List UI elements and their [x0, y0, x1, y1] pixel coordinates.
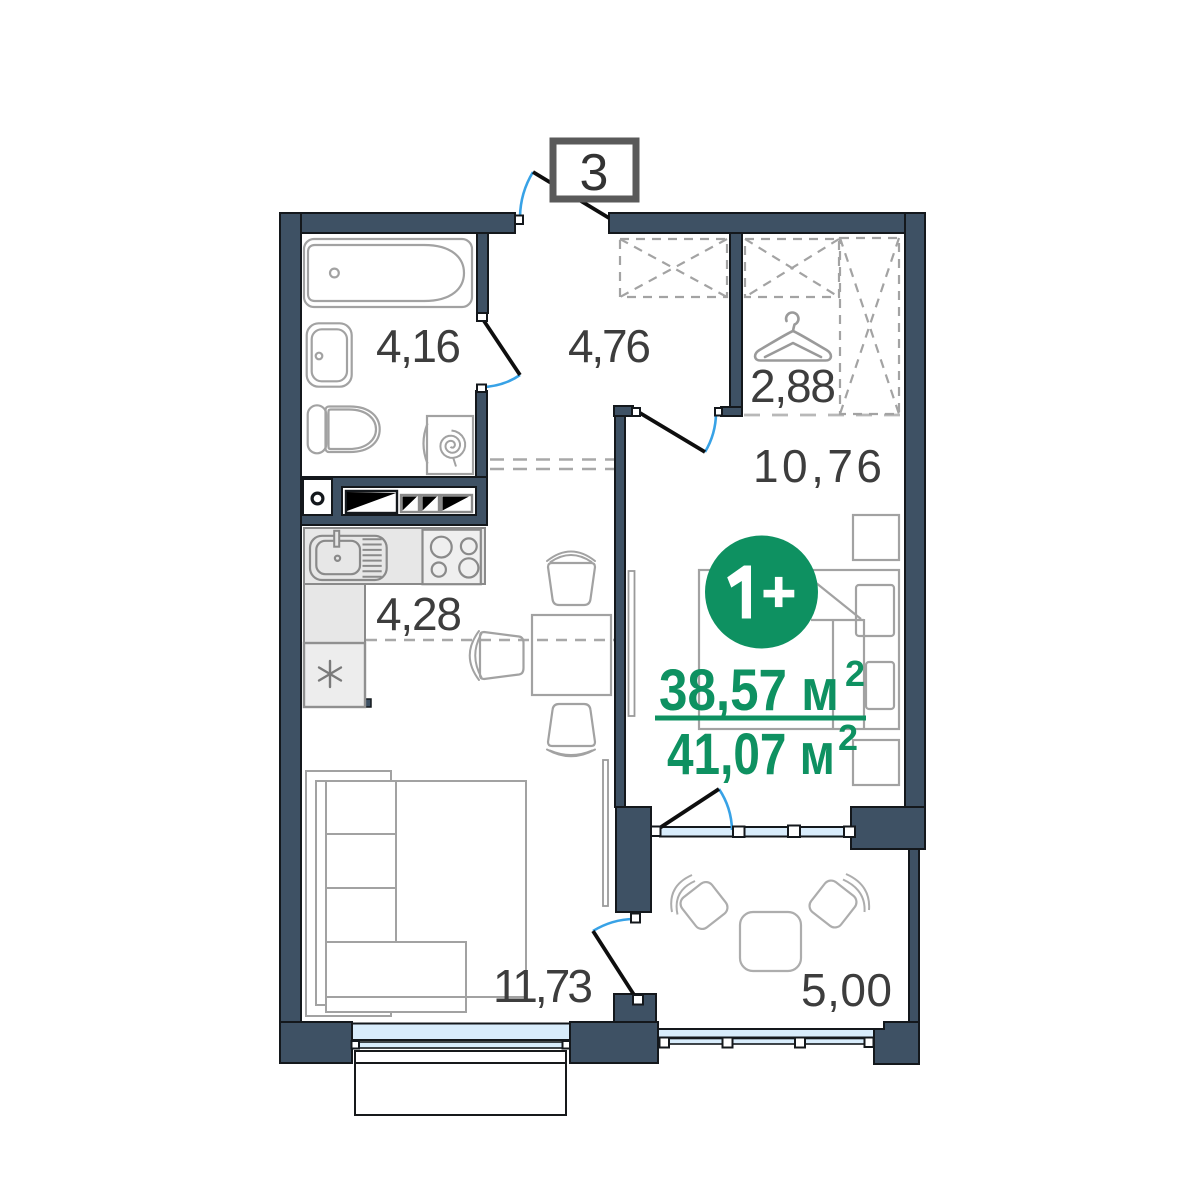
svg-text:4,76: 4,76 — [568, 320, 651, 372]
svg-text:11,73: 11,73 — [493, 960, 593, 1012]
svg-text:41,07 м: 41,07 м — [667, 722, 835, 787]
svg-text:4,16: 4,16 — [376, 320, 461, 372]
svg-text:4,28: 4,28 — [376, 588, 462, 640]
svg-text:5,00: 5,00 — [801, 964, 892, 1016]
svg-text:3: 3 — [580, 144, 609, 202]
svg-text:2,88: 2,88 — [750, 360, 836, 412]
svg-text:38,57 м: 38,57 м — [659, 658, 839, 723]
svg-text:2: 2 — [845, 653, 865, 694]
svg-text:10,76: 10,76 — [753, 440, 882, 492]
svg-text:2: 2 — [838, 717, 858, 758]
